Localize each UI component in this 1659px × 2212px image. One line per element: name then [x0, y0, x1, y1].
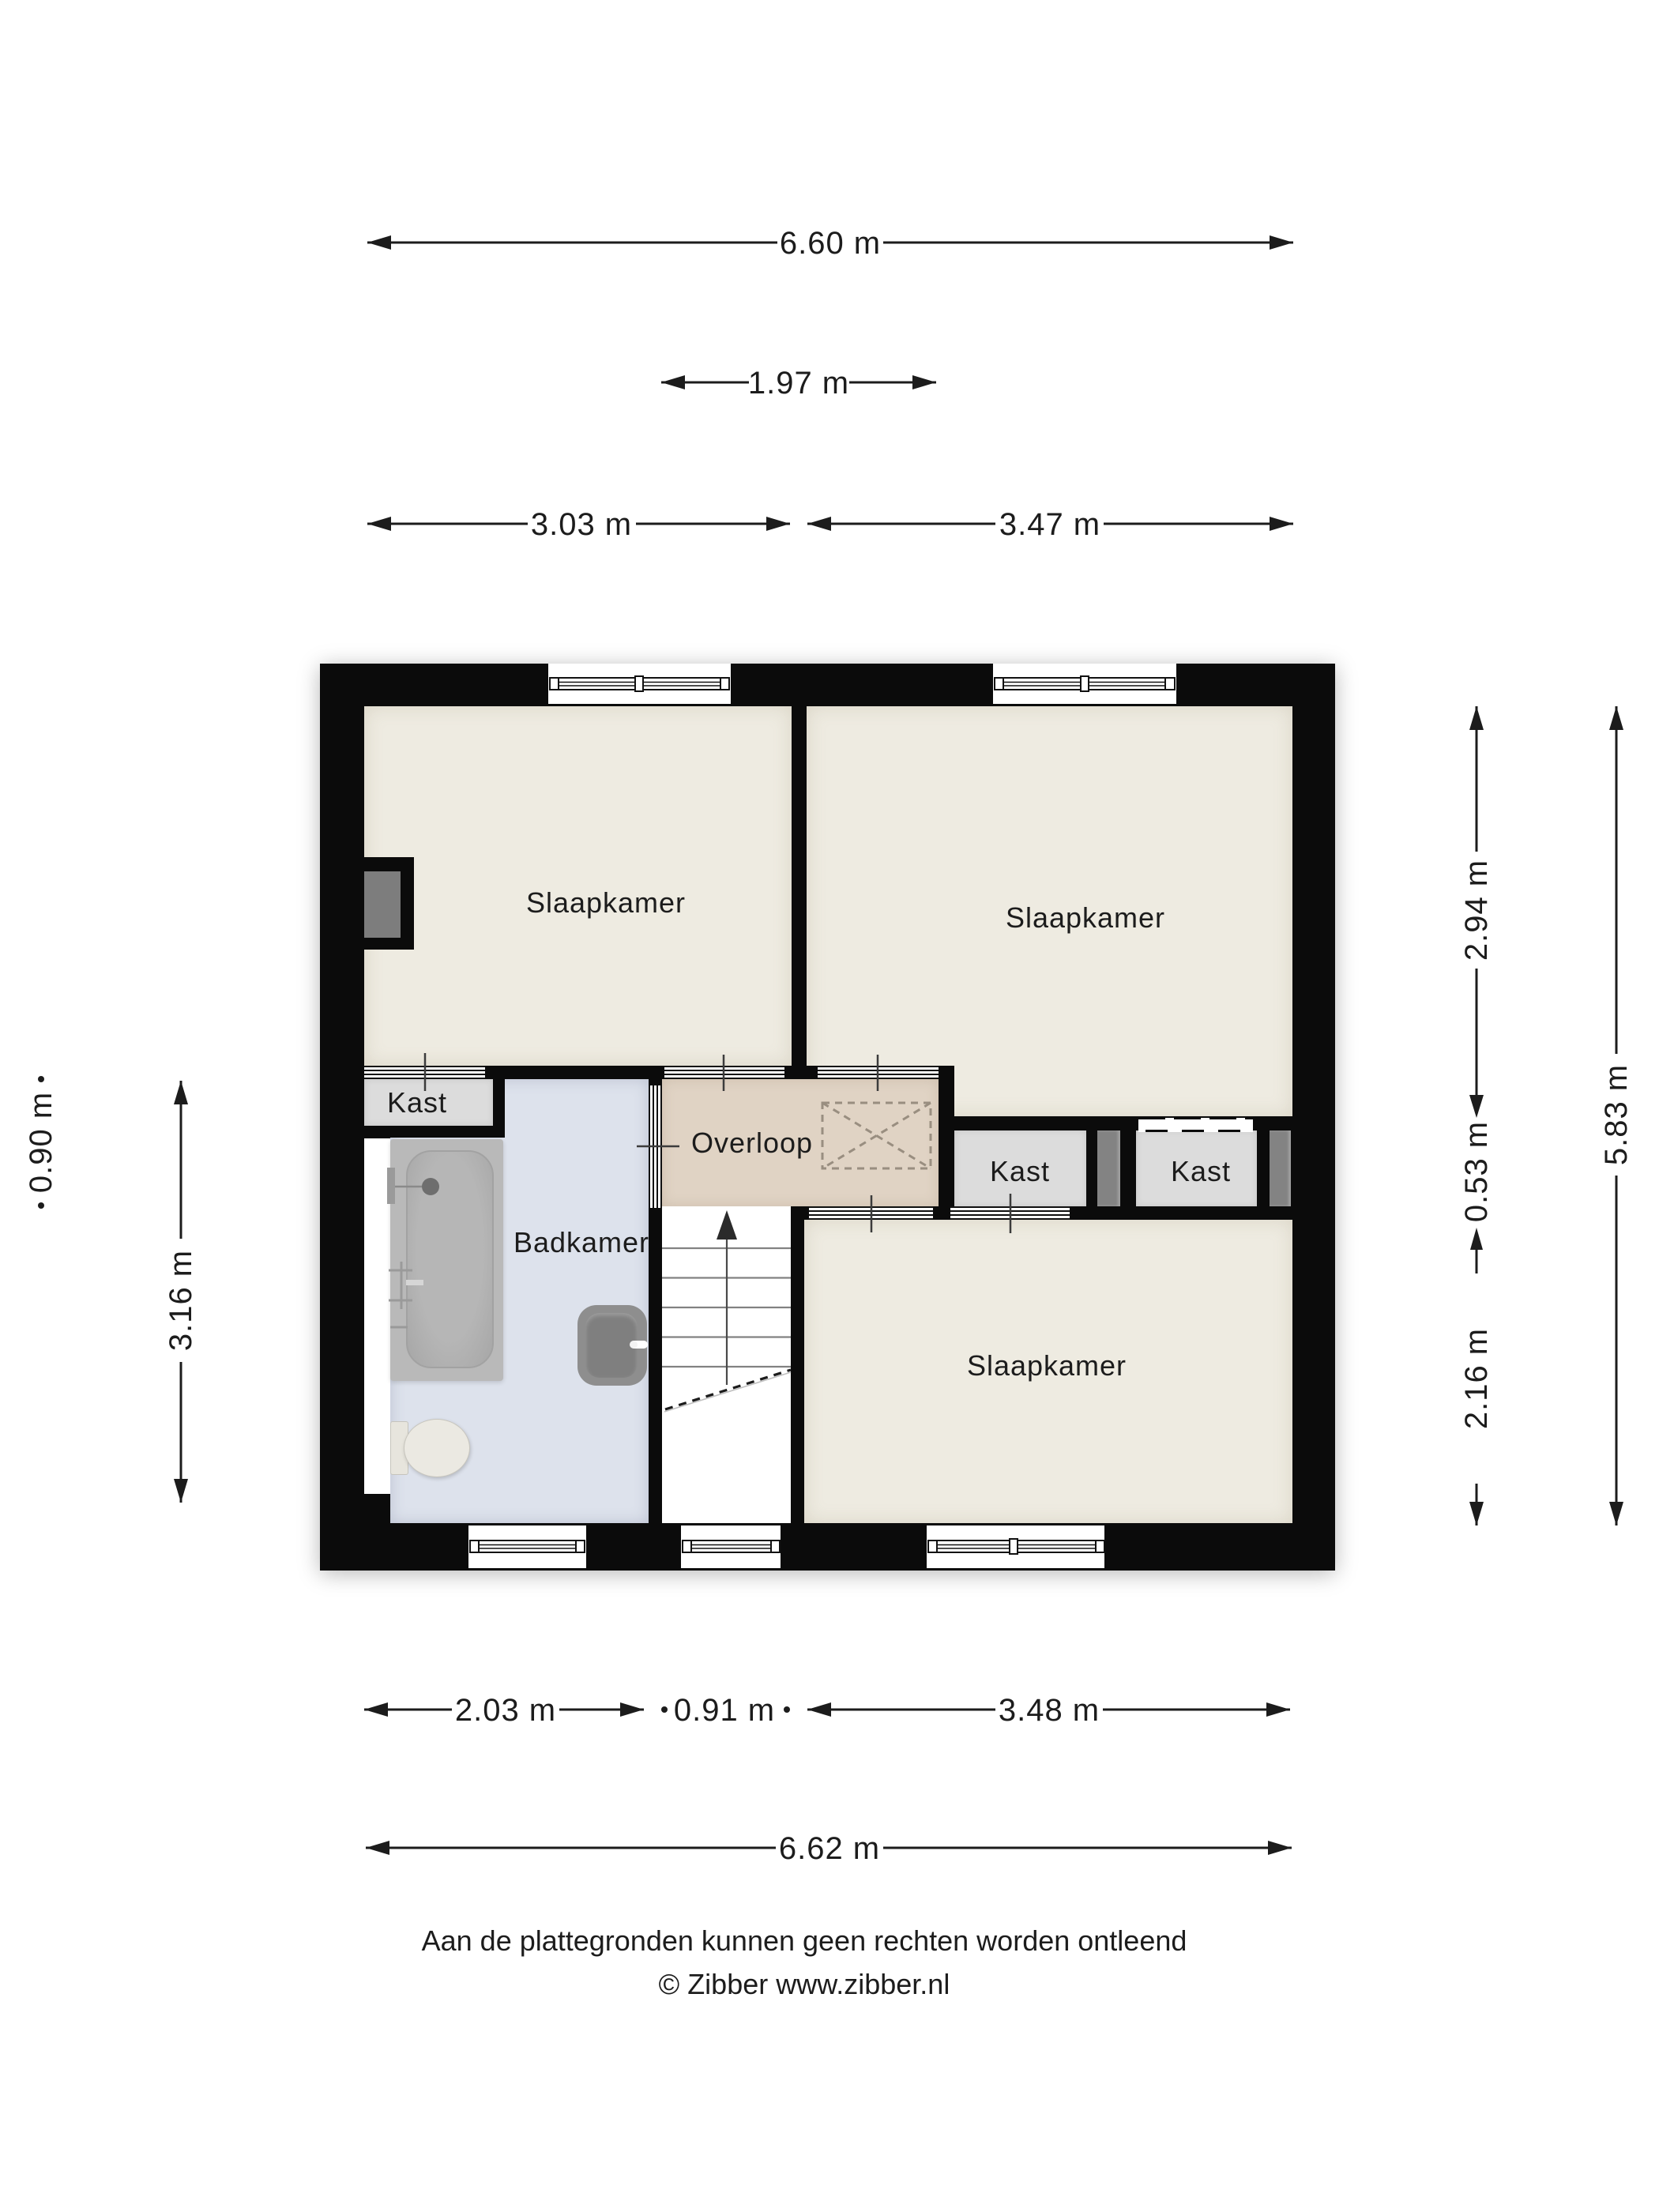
svg-text:0.90 m: 0.90 m [24, 1092, 58, 1193]
svg-text:3.03 m: 3.03 m [531, 507, 632, 542]
svg-text:2.16 m: 2.16 m [1459, 1328, 1494, 1429]
svg-text:0.91 m: 0.91 m [674, 1693, 775, 1728]
svg-text:0.53 m: 0.53 m [1459, 1121, 1494, 1222]
svg-text:6.60 m: 6.60 m [780, 226, 881, 261]
svg-text:5.83 m: 5.83 m [1599, 1064, 1634, 1165]
svg-text:3.16 m: 3.16 m [164, 1250, 198, 1351]
svg-text:1.97 m: 1.97 m [748, 366, 849, 401]
svg-text:6.62 m: 6.62 m [779, 1831, 880, 1866]
svg-text:2.03 m: 2.03 m [455, 1693, 556, 1728]
svg-text:2.94 m: 2.94 m [1459, 860, 1494, 961]
svg-text:3.48 m: 3.48 m [999, 1693, 1100, 1728]
svg-text:3.47 m: 3.47 m [999, 507, 1100, 542]
